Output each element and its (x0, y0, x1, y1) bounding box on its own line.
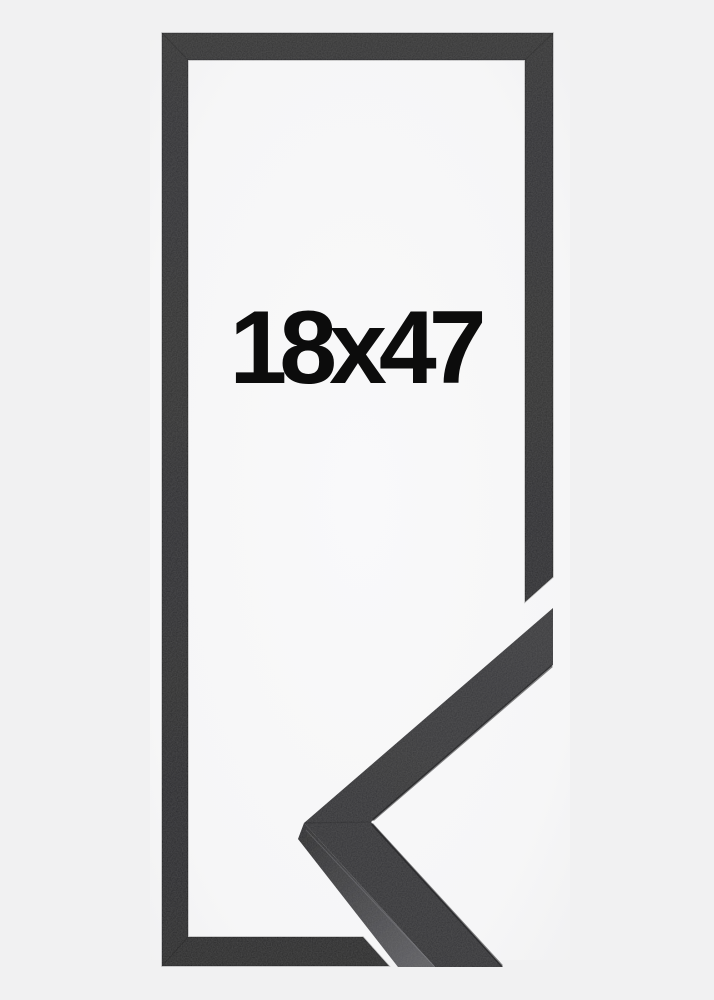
product-photo: 18x47 (0, 0, 714, 1000)
frame-product-image: 18x47 (0, 0, 714, 1000)
size-label: 18x47 (229, 290, 482, 406)
